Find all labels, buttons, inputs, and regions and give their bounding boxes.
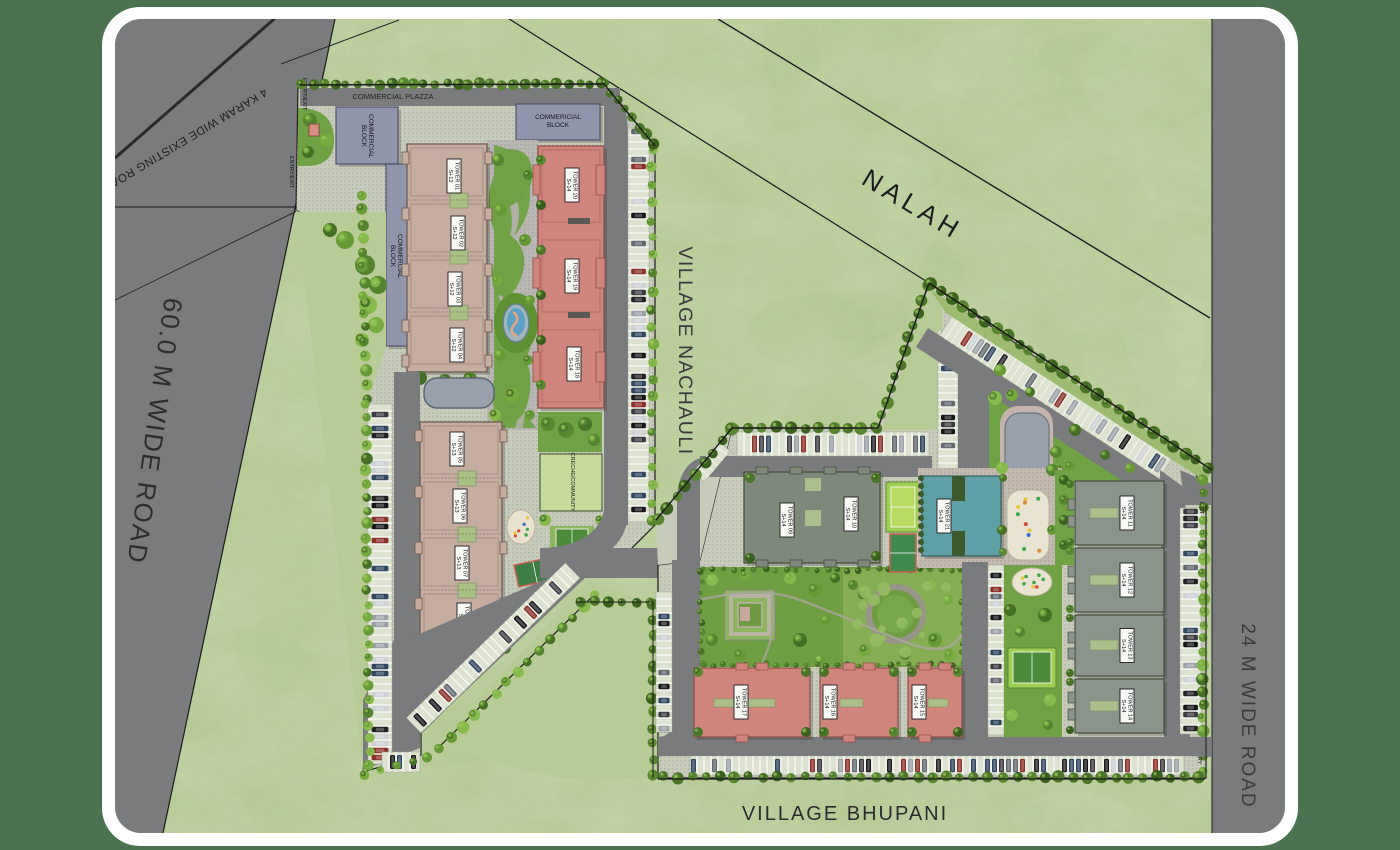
- svg-text:TOWER 12: TOWER 12: [1127, 566, 1133, 594]
- svg-text:S+14: S+14: [565, 270, 571, 283]
- svg-text:TOWER 03: TOWER 03: [455, 275, 461, 303]
- svg-text:TOWER 10: TOWER 10: [851, 500, 857, 528]
- svg-text:TOWER 16: TOWER 16: [830, 688, 836, 716]
- svg-text:TOWER 18: TOWER 18: [574, 350, 580, 378]
- svg-text:TOWER 19: TOWER 19: [572, 262, 578, 290]
- svg-text:VILLAGE NACHAULI: VILLAGE NACHAULI: [674, 246, 696, 455]
- svg-text:S+14: S+14: [823, 696, 829, 709]
- svg-text:CRECHE/COMMUNITY: CRECHE/COMMUNITY: [569, 453, 575, 512]
- svg-text:TOWER 15: TOWER 15: [919, 688, 925, 716]
- svg-text:COMMERCIAL PLAZZA: COMMERCIAL PLAZZA: [353, 92, 434, 101]
- svg-text:S+14: S+14: [565, 179, 571, 192]
- svg-text:S+13: S+13: [455, 557, 461, 570]
- svg-text:S+14: S+14: [937, 510, 943, 523]
- svg-text:VILLAGE BHUPANI: VILLAGE BHUPANI: [742, 803, 948, 825]
- svg-text:S+14: S+14: [1120, 507, 1126, 520]
- svg-text:S+12: S+12: [450, 339, 456, 352]
- svg-text:TOWER 17: TOWER 17: [741, 688, 747, 716]
- svg-text:ENTRY/EXIT: ENTRY/EXIT: [288, 156, 294, 189]
- svg-text:COMMERICIAL: COMMERICIAL: [535, 114, 581, 121]
- svg-text:TOWER 21: TOWER 21: [944, 502, 950, 530]
- svg-text:TOWER 07: TOWER 07: [462, 549, 468, 577]
- svg-text:BLOCK: BLOCK: [547, 122, 570, 129]
- svg-text:TOWER 14: TOWER 14: [1127, 692, 1133, 720]
- svg-text:S+14: S+14: [1120, 574, 1126, 587]
- svg-text:TOWER 13: TOWER 13: [1127, 631, 1133, 659]
- svg-text:TOWER 04: TOWER 04: [457, 331, 463, 359]
- svg-text:S+13: S+13: [453, 500, 459, 513]
- svg-text:S+14: S+14: [844, 508, 850, 521]
- svg-text:S+14: S+14: [1120, 639, 1126, 652]
- svg-text:TOWER 20: TOWER 20: [572, 171, 578, 199]
- svg-text:S+14: S+14: [734, 696, 740, 709]
- svg-text:S+12: S+12: [447, 170, 453, 183]
- svg-text:TOWER 01: TOWER 01: [454, 162, 460, 190]
- svg-text:S+12: S+12: [451, 227, 457, 240]
- svg-text:S+13: S+13: [450, 443, 456, 456]
- svg-text:TOWER 05: TOWER 05: [457, 435, 463, 463]
- svg-text:S+14: S+14: [780, 514, 786, 527]
- svg-text:S+12: S+12: [448, 283, 454, 296]
- svg-text:TOWER 06: TOWER 06: [460, 492, 466, 520]
- svg-text:24 M WIDE ROAD: 24 M WIDE ROAD: [1237, 623, 1258, 808]
- svg-text:TOWER 11: TOWER 11: [1127, 499, 1133, 527]
- svg-text:S+14: S+14: [1120, 700, 1126, 713]
- svg-text:S+14: S+14: [912, 696, 918, 709]
- svg-text:TOWER 02: TOWER 02: [458, 219, 464, 247]
- svg-text:EXIT: EXIT: [1198, 502, 1204, 515]
- svg-text:TOWER 09: TOWER 09: [787, 506, 793, 534]
- svg-text:S+14: S+14: [567, 358, 573, 371]
